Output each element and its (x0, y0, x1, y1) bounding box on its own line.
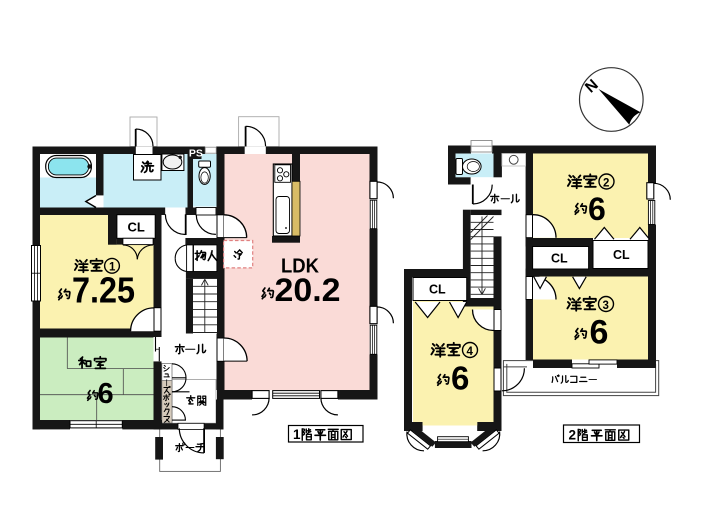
svg-text:6: 6 (451, 360, 469, 397)
svg-text:CL: CL (128, 220, 145, 235)
svg-text:7.25: 7.25 (72, 270, 135, 311)
svg-text:6: 6 (590, 314, 609, 352)
svg-text:6: 6 (98, 378, 114, 410)
svg-text:6: 6 (588, 191, 606, 227)
svg-text:2: 2 (569, 428, 577, 443)
svg-text:20.2: 20.2 (275, 272, 341, 308)
svg-text:CL: CL (551, 252, 568, 266)
svg-text:PS: PS (189, 148, 203, 160)
svg-text:2: 2 (603, 177, 609, 189)
svg-text:CL: CL (429, 283, 446, 297)
svg-text:1: 1 (293, 427, 301, 442)
svg-text:CL: CL (613, 248, 630, 262)
svg-text:4: 4 (467, 346, 474, 358)
svg-text:3: 3 (603, 300, 609, 312)
